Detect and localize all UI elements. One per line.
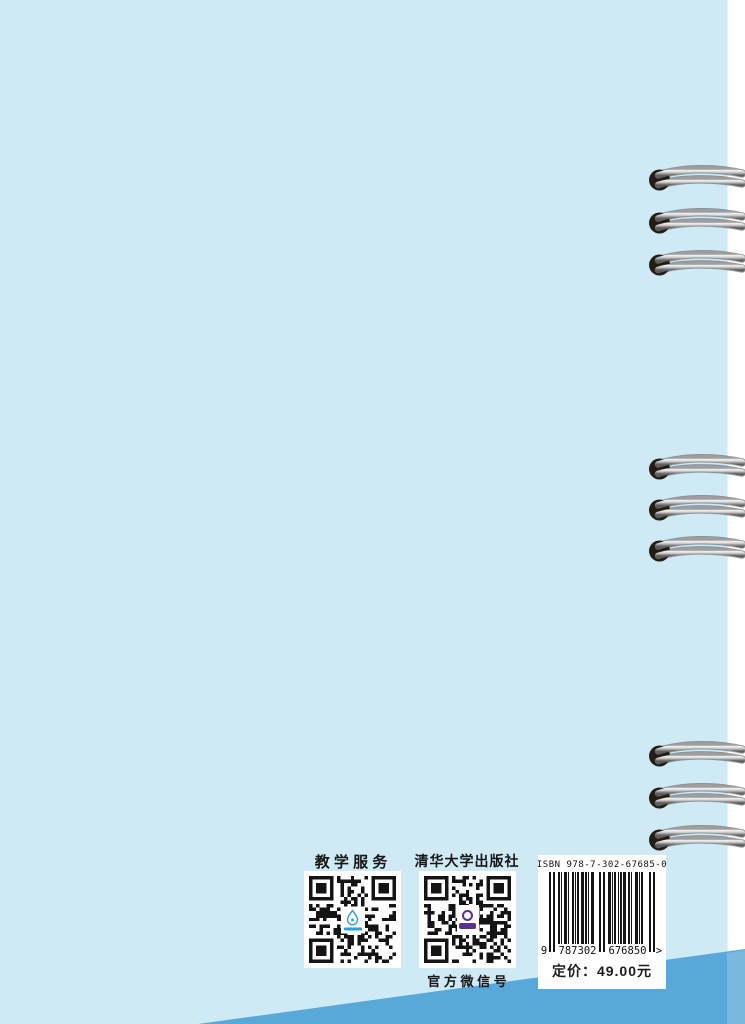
qr-code-teaching-service <box>304 871 401 968</box>
barcode-digits: 9 787302 676850 > <box>538 944 666 958</box>
binding-ring <box>648 248 745 282</box>
barcode-digit-lead: 9 <box>539 944 549 958</box>
barcode-panel: ISBN 978-7-302-67685-0 9 787302 676850 >… <box>538 855 666 989</box>
water-drop-logo-icon <box>341 906 365 933</box>
emblem-ring <box>462 910 473 921</box>
binding-ring <box>648 493 745 527</box>
binding-ring <box>648 534 745 568</box>
barcode-digit-group1: 787302 <box>557 944 598 958</box>
book-back-cover: 教 学 服 务 清华大学出版社 官 方 微 信 号 ISBN 978-7-302… <box>0 0 745 1024</box>
logo-text-line <box>344 927 362 930</box>
university-emblem-icon <box>457 905 479 935</box>
binding-ring <box>648 452 745 486</box>
binding-ring <box>648 781 745 815</box>
binding-ring <box>648 739 745 773</box>
barcode: 9 787302 676850 > <box>538 870 666 961</box>
teaching-service-label: 教 学 服 务 <box>301 851 401 872</box>
binding-ring <box>648 163 745 197</box>
emblem-plate <box>459 923 476 929</box>
binding-ring <box>648 823 745 857</box>
isbn-text: ISBN 978-7-302-67685-0 <box>537 860 667 870</box>
price-text: 定价：49.00元 <box>552 961 652 981</box>
barcode-digit-group2: 676850 <box>607 944 648 958</box>
publisher-label: 清华大学出版社 <box>413 851 521 871</box>
barcode-digit-tail: > <box>653 944 665 958</box>
qr-code-publisher-wechat <box>419 871 516 968</box>
wechat-account-label: 官 方 微 信 号 <box>416 971 518 990</box>
binding-ring <box>648 206 745 240</box>
